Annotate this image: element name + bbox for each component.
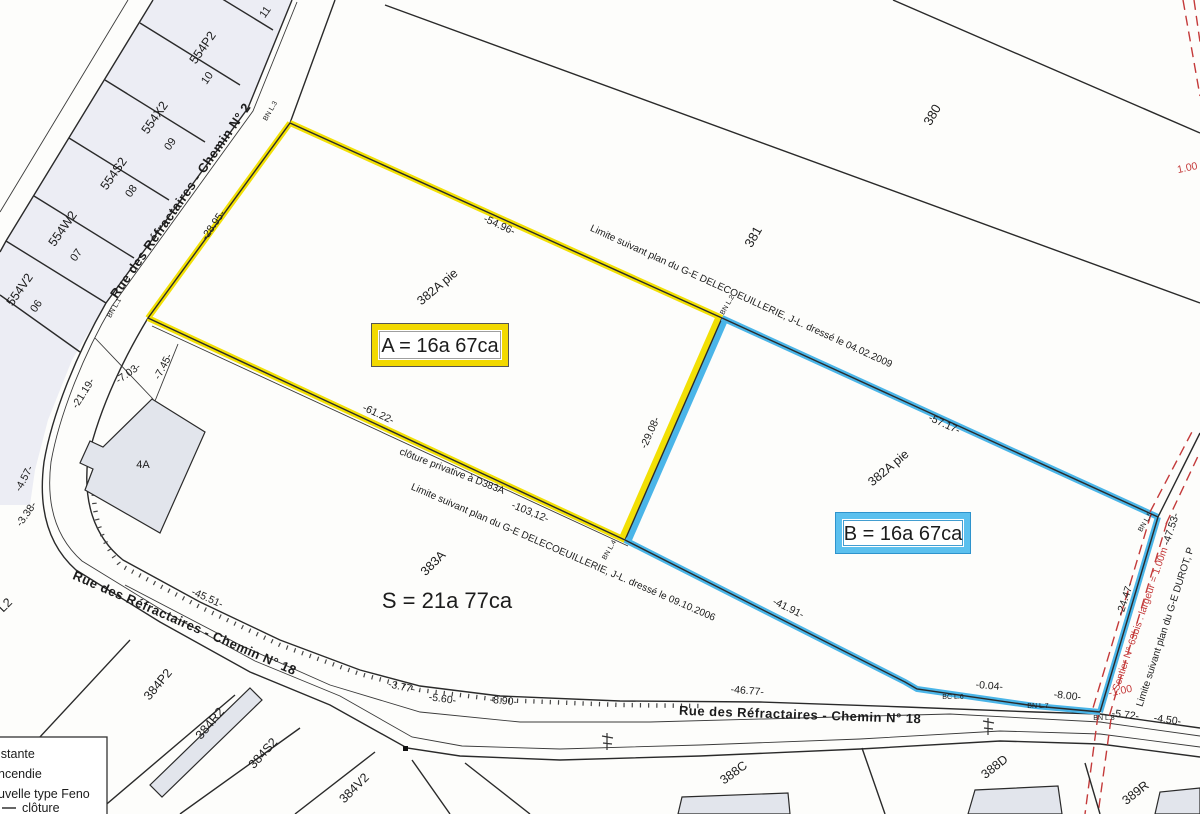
parcel-384s2-label: 384S2 bbox=[246, 735, 281, 771]
boundary-380-381 bbox=[385, 5, 1200, 303]
road-marker-square bbox=[403, 746, 408, 751]
road-names: Rue des Réfractaires - Chemin N° 2 Rue d… bbox=[71, 100, 922, 726]
marker-bn-l1: BN L.1 bbox=[106, 297, 123, 319]
legend-row-feno: uvelle type Feno bbox=[0, 787, 90, 801]
legend-row-cloture: clôture bbox=[22, 801, 60, 814]
divider-384v2-b bbox=[465, 763, 530, 814]
parcel-383a-label: 383A bbox=[418, 547, 449, 578]
divider-blue-side bbox=[628, 320, 725, 542]
parcel-b-area-label: B = 16a 67ca bbox=[844, 523, 963, 545]
legend-row-existante: istante bbox=[0, 747, 35, 761]
parcel-divider-line bbox=[625, 318, 722, 540]
parcel-labels: 380 381 11 382A pie 382A pie 383A bbox=[257, 4, 944, 578]
meas-46-77: -46.77- bbox=[730, 684, 765, 699]
parcel-s-area-label: S = 21a 77ca bbox=[382, 588, 513, 613]
building-389r bbox=[1155, 788, 1200, 814]
meas-5-72: -5.72- bbox=[1111, 707, 1140, 722]
parcel-a-north-line bbox=[290, 123, 722, 318]
meas-7-45: -7.45- bbox=[152, 351, 176, 381]
limit-notes: Limite suivant plan du G-E DELECOEUILLER… bbox=[398, 223, 1197, 708]
meas-8-90: -8.90- bbox=[489, 694, 518, 708]
legend-row-incendie: ncendie bbox=[0, 767, 42, 781]
meas-21-19: -21.19- bbox=[70, 376, 98, 411]
area-box-b: B = 16a 67ca bbox=[836, 513, 971, 554]
marker-bn-l8: BN L.8 bbox=[1093, 715, 1115, 722]
parcel-a-area-label: A = 16a 67ca bbox=[381, 335, 499, 357]
marker-bn-l2: BN L.2 bbox=[719, 294, 736, 316]
parcel-388c-label: 388C bbox=[717, 758, 749, 787]
legend-box: istante ncendie uvelle type Feno clôture bbox=[0, 737, 107, 814]
meas-4-50: -4.50- bbox=[1153, 712, 1182, 728]
meas-5-60: -5.60- bbox=[428, 691, 457, 707]
meas-57-17: -57.17- bbox=[927, 412, 963, 437]
divider-yellow-side bbox=[622, 316, 719, 538]
marker-bn-l4: BN L.4 bbox=[601, 539, 618, 561]
boundary-east-extension bbox=[1158, 433, 1200, 517]
survey-markers: BN L.1 BN L.2 BN L.3 BN L.4 BN L.5 BC L.… bbox=[106, 100, 1154, 722]
divider-388d-389r bbox=[1085, 763, 1100, 814]
building-384r2 bbox=[150, 688, 262, 797]
parcel-380-label: 380 bbox=[920, 102, 944, 128]
parcel-388d-label: 388D bbox=[978, 752, 1010, 781]
divider-384v2-a bbox=[412, 760, 450, 814]
south-parcel-labels: L2 384P2 384R2 384S2 384V2 388C 388D 389… bbox=[0, 459, 1152, 808]
road-chemin18-name-left: Rue des Réfractaires - Chemin N° 18 bbox=[71, 568, 299, 678]
building-388d bbox=[968, 786, 1062, 814]
parcel-b-south-line bbox=[625, 540, 1100, 712]
meas-28-95: -28.95- bbox=[199, 208, 228, 243]
building-4a-label: 4A bbox=[136, 459, 150, 471]
parcel-384p2-label: 384P2 bbox=[141, 666, 175, 703]
marker-bn-l3: BN L.3 bbox=[262, 100, 279, 122]
sentier-dash-north-west bbox=[1150, 428, 1194, 512]
lamp-icon bbox=[983, 718, 994, 735]
limit-north-note: Limite suivant plan du G-E DELECOEUILLER… bbox=[588, 223, 894, 370]
divider-388c-388d bbox=[862, 748, 885, 814]
adjacent-boundaries bbox=[385, 0, 1200, 303]
parcel-382a-a-label: 382A pie bbox=[414, 266, 460, 308]
parcel-389r-label: 389R bbox=[1119, 778, 1151, 807]
cadastral-plan: A = 16a 67ca B = 16a 67ca S = 21a 77ca 3… bbox=[0, 0, 1200, 814]
cadastral-plan-page: A = 16a 67ca B = 16a 67ca S = 21a 77ca 3… bbox=[0, 0, 1200, 814]
building-388c bbox=[678, 793, 790, 814]
parcel-384v2-label: 384V2 bbox=[336, 770, 371, 805]
parcel-b-south-highlight bbox=[625, 540, 1100, 712]
meas-47-53: -47.53- bbox=[1160, 511, 1182, 547]
marker-bc-l6: BC L.6 bbox=[942, 694, 964, 701]
meas-0-04: -0.04- bbox=[975, 679, 1004, 693]
sentier-dash-south-east bbox=[1098, 719, 1111, 814]
area-box-a: A = 16a 67ca bbox=[372, 324, 509, 367]
meas-7-03: -7.03- bbox=[114, 360, 144, 386]
meas-3-77: -3.77- bbox=[387, 678, 417, 696]
parcel-l2-label: L2 bbox=[0, 595, 15, 615]
parcel-382a-b-label: 382A pie bbox=[865, 447, 911, 489]
marker-bn-l7: BN L.7 bbox=[1027, 703, 1049, 710]
meas-1-00-north: 1.00 bbox=[1176, 160, 1199, 176]
parcel-381-label: 381 bbox=[741, 224, 765, 250]
meas-45-51: -45.51- bbox=[190, 586, 226, 611]
sentier-dash-corner-2 bbox=[1194, 0, 1200, 42]
meas-8-00: -8.00- bbox=[1053, 689, 1082, 704]
sentier-dash-corner-1 bbox=[1183, 0, 1200, 96]
meas-29-08: -29.08- bbox=[638, 415, 663, 451]
